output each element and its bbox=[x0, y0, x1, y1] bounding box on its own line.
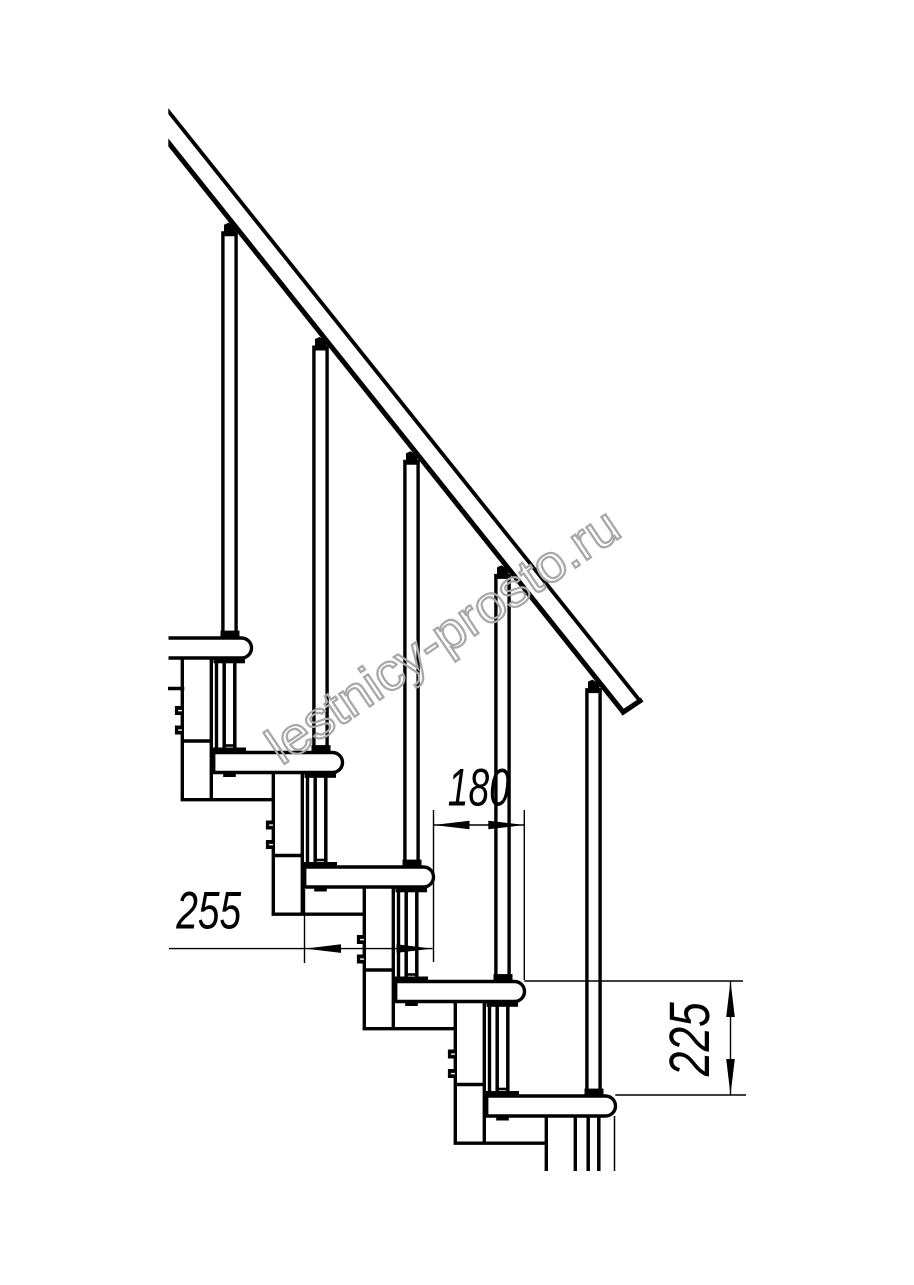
svg-text:225: 225 bbox=[658, 1002, 722, 1077]
svg-text:255: 255 bbox=[175, 881, 241, 940]
svg-text:180: 180 bbox=[448, 759, 510, 818]
